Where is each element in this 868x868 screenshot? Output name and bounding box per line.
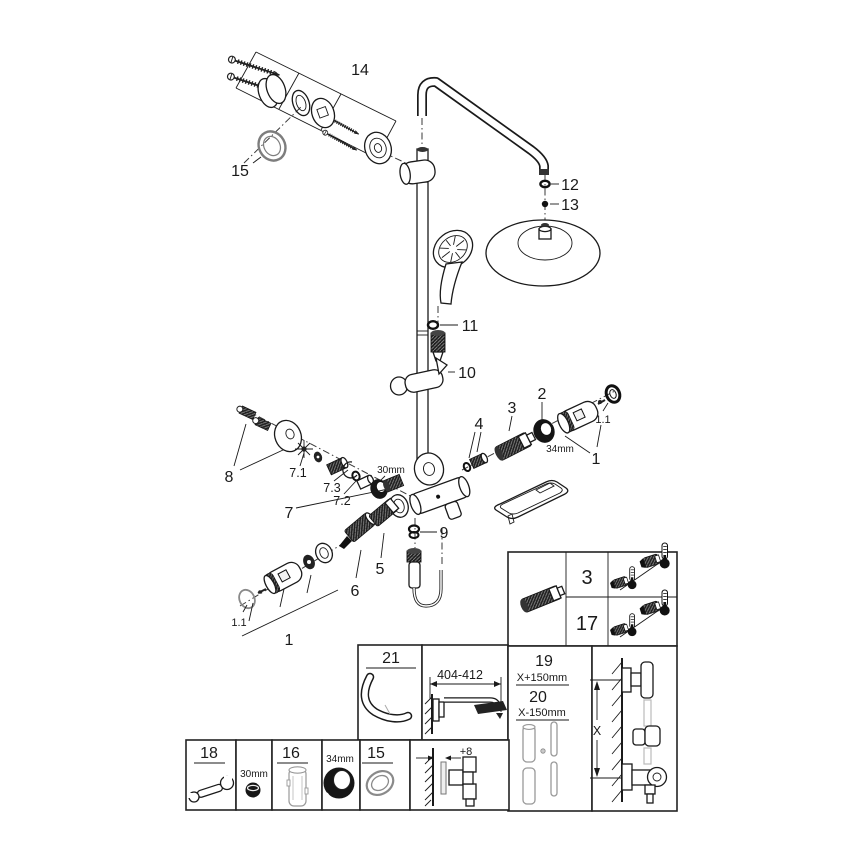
callout-15-label: 15 [231, 163, 249, 180]
callout-1b-label: 1 [285, 632, 294, 649]
head-shower [486, 220, 600, 286]
panel-16-label: 16 [282, 745, 300, 762]
plug-size-label: 30mm [240, 769, 268, 780]
panel-34mm-nut: 34mm [322, 740, 360, 810]
panel-21-label: 21 [382, 650, 400, 667]
wall-dimension-x: X [593, 724, 602, 738]
callout-1-1-label: 1.1 [595, 414, 610, 426]
callout-11-label: 11 [462, 318, 479, 335]
panel-arm-reach: 404-412 [422, 645, 508, 740]
panel-21: 21 [358, 645, 422, 740]
panel-30mm-plug: 30mm [236, 740, 272, 810]
panel-16-tool: 16 [272, 740, 322, 810]
callout-6-label: 6 [351, 583, 360, 600]
callout-9-label: 9 [440, 525, 449, 542]
callout-3-label: 3 [508, 400, 517, 417]
diagram-canvas: 14 15 12 13 [0, 0, 868, 868]
protrusion-dimension: +8 [460, 746, 473, 758]
panel-15-ring: 15 [360, 740, 410, 810]
panel-heights: 19 X+150mm 20 X-150mm [508, 646, 592, 811]
exploded-parts-diagram: 14 15 12 13 [0, 0, 868, 868]
shower-rail [417, 182, 428, 464]
callout-13-label: 13 [561, 197, 579, 214]
panel-wall-mounting: X [590, 646, 677, 811]
callout-12-label: 12 [561, 177, 579, 194]
ring-nut-size-label: 34mm [326, 754, 354, 765]
arm-reach-dimension: 404-412 [437, 668, 483, 682]
arm-outlet [539, 169, 549, 175]
spec-row-3: 3 [581, 567, 592, 589]
callout-1-label: 1 [592, 451, 601, 468]
callout-14-label: 14 [351, 62, 369, 79]
callout-10-label: 10 [458, 365, 476, 382]
cap-size-label: 30mm [377, 465, 405, 476]
mounting-tool-icon [287, 767, 308, 806]
panel-protrusion: +8 [410, 740, 509, 810]
panel-20-offset: X-150mm [518, 707, 566, 719]
callout-7-label: 7 [285, 505, 294, 522]
spec-row-17: 17 [576, 613, 598, 635]
panel-18-wrench: 18 [186, 740, 236, 810]
callout-8-label: 8 [225, 469, 234, 486]
panel-19-label: 19 [535, 653, 553, 670]
panel-15-label: 15 [367, 745, 385, 762]
callout-1-1b-label: 1.1 [231, 617, 246, 629]
plug-icon [246, 783, 261, 798]
callout-4-label: 4 [475, 416, 484, 433]
callout-7-3-label: 7.3 [323, 481, 340, 495]
panel-20-label: 20 [529, 689, 547, 706]
callout-7-1-label: 7.1 [289, 466, 306, 480]
callout-5-label: 5 [376, 561, 385, 578]
nut-size-label: 34mm [546, 444, 574, 455]
panel-19-offset: X+150mm [517, 672, 567, 684]
callout-2-label: 2 [538, 386, 547, 403]
panel-18-label: 18 [200, 745, 218, 762]
callout-7-2-label: 7.2 [333, 494, 350, 508]
spec-table: 3 17 [508, 543, 677, 646]
